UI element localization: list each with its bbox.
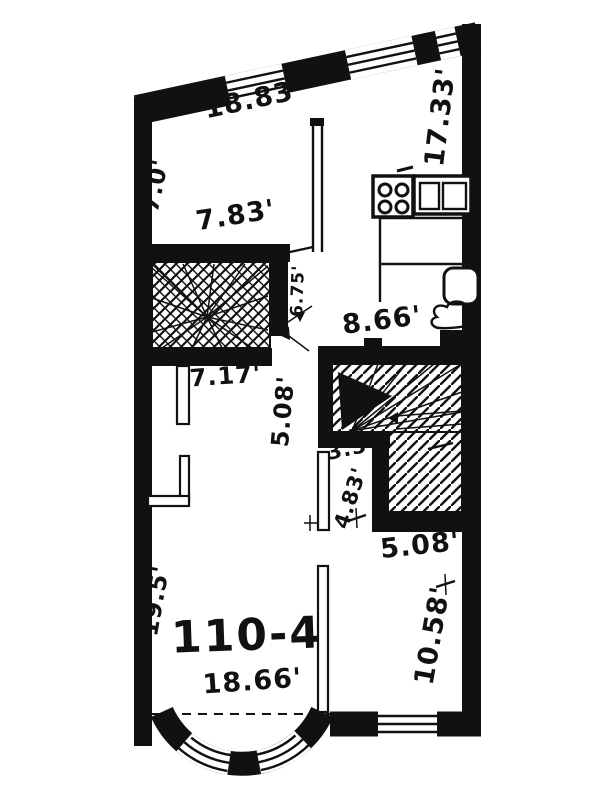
stove-burner-icon: [379, 184, 391, 196]
paper-background: [0, 0, 612, 792]
unit-number-label: 110-4: [170, 607, 322, 663]
stove-burner-icon: [396, 184, 408, 196]
stove-burner-icon: [396, 201, 408, 213]
dim-hall-width-label: 7.17': [189, 360, 262, 393]
bedroom-partition-cap: [310, 118, 324, 126]
stove-burner-icon: [379, 201, 391, 213]
floor-plan-canvas: 18.83' 17.33' 7.0' 7.83' 6.75' 8.66' 7.1…: [0, 0, 612, 792]
closet-wall-horizontal: [148, 496, 189, 506]
stair-upper-treads: [152, 262, 270, 348]
floor-plan-page: 18.83' 17.33' 7.0' 7.83' 6.75' 8.66' 7.1…: [0, 0, 612, 792]
hall-door-frame: [177, 366, 189, 424]
kitchen-fixture-rounded: [444, 268, 478, 304]
right-wall: [462, 24, 481, 714]
stairwell-upper: [148, 244, 290, 366]
stair-lower-top-wall: [318, 346, 481, 364]
stair-upper-top-wall: [148, 244, 290, 262]
stair-lower-top-tab: [364, 338, 382, 348]
entry-door-frame: [318, 452, 329, 530]
dim-stair-opening-label: 6.75': [287, 264, 309, 317]
